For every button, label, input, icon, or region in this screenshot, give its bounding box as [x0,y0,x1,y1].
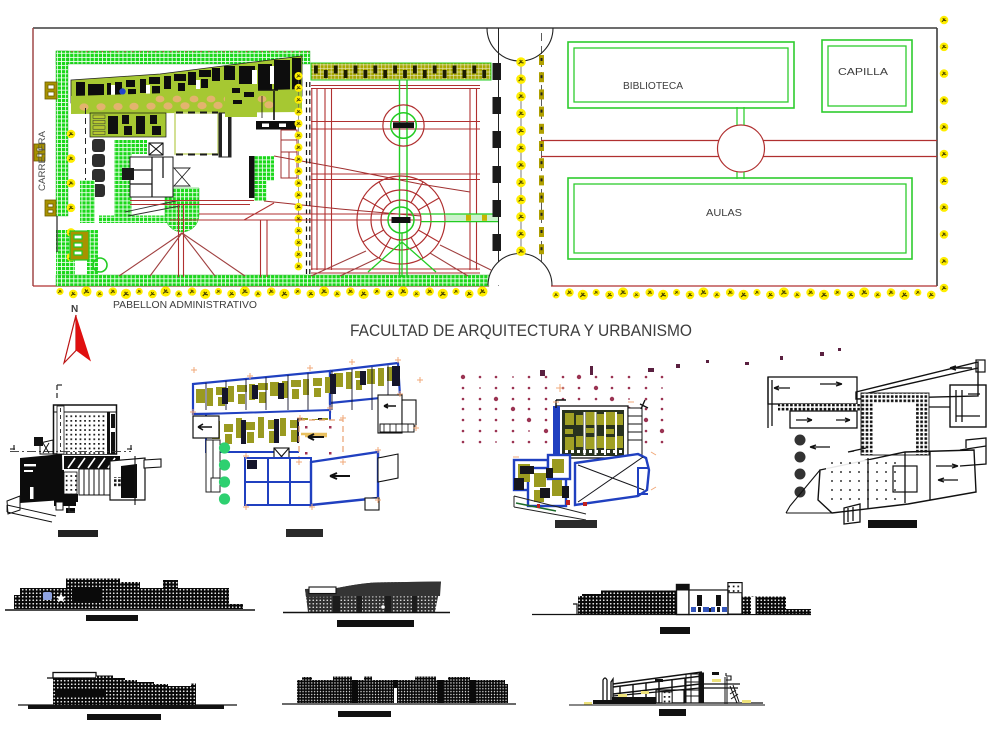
svg-text:CAPILLA: CAPILLA [838,67,888,78]
svg-text:CARRETERA: CARRETERA [37,130,48,191]
svg-text:FACULTAD DE ARQUITECTURA Y URB: FACULTAD DE ARQUITECTURA Y URBANISMO [350,322,692,340]
svg-text:AULAS: AULAS [706,208,742,219]
svg-text:N: N [71,304,78,315]
svg-text:BIBLIOTECA: BIBLIOTECA [623,81,683,92]
svg-text:PABELLON ADMINISTRATIVO: PABELLON ADMINISTRATIVO [113,299,257,311]
